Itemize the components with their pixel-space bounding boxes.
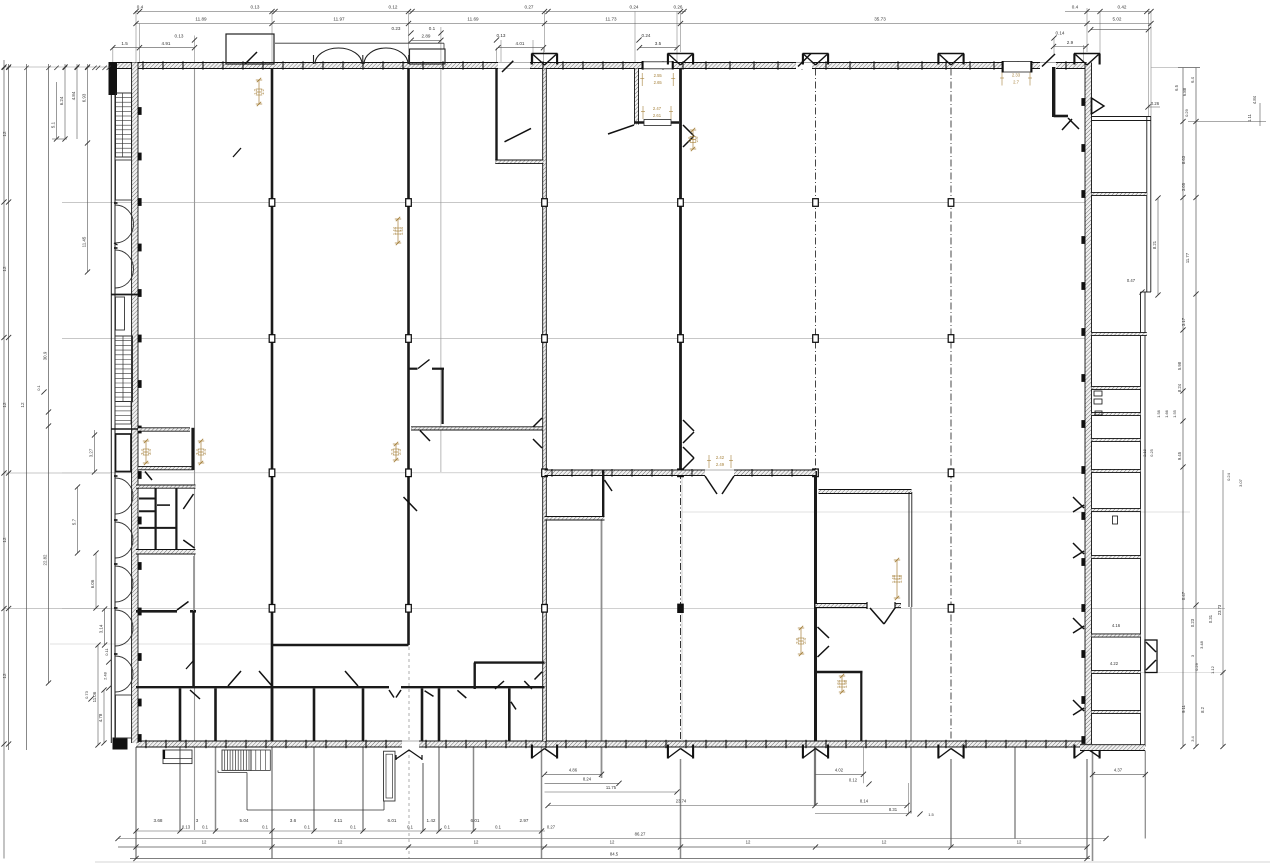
svg-text:0.47: 0.47	[1127, 278, 1136, 283]
svg-text:0.1: 0.1	[350, 824, 356, 829]
svg-text:2.6: 2.6	[687, 136, 692, 142]
svg-text:11.73: 11.73	[605, 17, 617, 22]
svg-text:0.24: 0.24	[1226, 472, 1231, 481]
svg-text:0.1: 0.1	[262, 824, 268, 829]
svg-text:0.4: 0.4	[137, 5, 144, 10]
svg-text:1.58: 1.58	[1156, 410, 1161, 418]
svg-text:4.16: 4.16	[1112, 623, 1121, 628]
svg-text:2.7: 2.7	[1013, 80, 1019, 85]
svg-text:12: 12	[610, 840, 615, 845]
svg-text:0.1: 0.1	[407, 824, 413, 829]
svg-text:1.48: 1.48	[898, 574, 903, 583]
svg-text:6.06: 6.06	[90, 579, 95, 588]
svg-text:8.24: 8.24	[1177, 383, 1182, 392]
svg-text:86.27: 86.27	[635, 831, 646, 836]
svg-text:4.37: 4.37	[1114, 768, 1123, 773]
svg-text:12: 12	[2, 673, 7, 679]
svg-text:3.27: 3.27	[89, 448, 94, 457]
svg-text:5.7: 5.7	[72, 518, 77, 525]
svg-text:11.77: 11.77	[1185, 252, 1190, 263]
svg-text:3.5: 3.5	[655, 41, 662, 46]
svg-text:8.21: 8.21	[1152, 240, 1157, 249]
svg-text:3.4: 3.4	[195, 448, 200, 454]
svg-text:6.5: 6.5	[1174, 84, 1179, 90]
svg-text:0.12: 0.12	[849, 778, 858, 783]
svg-text:2.6: 2.6	[694, 136, 699, 142]
svg-text:0.4: 0.4	[1072, 5, 1079, 10]
svg-text:0.1: 0.1	[429, 26, 436, 31]
svg-text:12: 12	[202, 840, 207, 845]
svg-text:0.24: 0.24	[630, 5, 639, 10]
svg-text:2.65: 2.65	[654, 80, 663, 85]
svg-text:2.49: 2.49	[716, 462, 725, 467]
svg-text:8.14: 8.14	[860, 799, 869, 804]
svg-text:3.48: 3.48	[1199, 640, 1204, 649]
svg-text:12: 12	[2, 537, 7, 543]
svg-text:0.13: 0.13	[182, 824, 191, 829]
svg-text:0.27: 0.27	[525, 5, 534, 10]
svg-text:30.9: 30.9	[43, 351, 48, 360]
svg-text:3.6: 3.6	[290, 818, 297, 823]
svg-text:1.98: 1.98	[843, 679, 848, 688]
svg-text:2.8: 2.8	[795, 637, 800, 643]
svg-text:4.11: 4.11	[334, 818, 343, 823]
svg-text:8.2: 8.2	[1200, 706, 1205, 712]
svg-text:1.66: 1.66	[1164, 410, 1169, 418]
svg-text:12: 12	[2, 131, 7, 137]
svg-text:1.5: 1.5	[928, 812, 934, 817]
svg-text:12: 12	[474, 840, 479, 845]
svg-text:2.4: 2.4	[802, 637, 807, 643]
svg-text:1.48: 1.48	[891, 574, 896, 583]
svg-text:3.4: 3.4	[202, 448, 207, 454]
svg-text:11.75: 11.75	[606, 785, 617, 790]
svg-text:23.73: 23.73	[1217, 604, 1222, 615]
svg-text:0.23: 0.23	[1190, 618, 1195, 627]
svg-text:6.88: 6.88	[1182, 87, 1187, 96]
svg-text:6.24: 6.24	[59, 96, 64, 105]
svg-text:1.44: 1.44	[399, 226, 404, 235]
svg-text:3: 3	[196, 818, 199, 823]
svg-text:3.4: 3.4	[147, 448, 152, 454]
svg-text:0.24: 0.24	[642, 33, 651, 38]
svg-text:0.11: 0.11	[104, 647, 109, 655]
svg-text:6.01: 6.01	[388, 818, 397, 823]
svg-text:6.01: 6.01	[471, 818, 480, 823]
svg-text:4.22: 4.22	[1110, 661, 1119, 666]
svg-text:0.73: 0.73	[84, 690, 89, 699]
svg-text:0.26: 0.26	[1151, 101, 1160, 106]
svg-text:2.42: 2.42	[716, 455, 725, 460]
svg-text:1.11: 1.11	[1247, 113, 1252, 122]
svg-text:3.14: 3.14	[99, 624, 104, 633]
svg-text:12: 12	[20, 402, 25, 408]
svg-text:4.86: 4.86	[569, 767, 578, 772]
svg-text:12: 12	[2, 402, 7, 408]
svg-text:11.69: 11.69	[467, 17, 479, 22]
svg-text:2.33: 2.33	[1012, 73, 1021, 78]
svg-text:8.31: 8.31	[889, 807, 898, 812]
svg-text:9.45: 9.45	[1177, 451, 1182, 460]
svg-text:4.91: 4.91	[162, 41, 171, 46]
svg-text:2.97: 2.97	[520, 818, 529, 823]
svg-text:0.1: 0.1	[202, 824, 208, 829]
svg-text:0.14: 0.14	[1056, 31, 1065, 36]
svg-text:0.29: 0.29	[1184, 108, 1189, 117]
svg-text:0.23: 0.23	[392, 26, 401, 31]
svg-text:12: 12	[2, 266, 7, 272]
svg-text:23.74: 23.74	[676, 799, 687, 804]
svg-text:4.84: 4.84	[71, 91, 76, 100]
svg-text:0.29: 0.29	[1194, 662, 1199, 671]
svg-text:2.3: 2.3	[397, 448, 402, 454]
svg-text:84.5: 84.5	[610, 852, 619, 857]
svg-text:5.04: 5.04	[240, 818, 249, 823]
svg-text:1.5: 1.5	[121, 41, 128, 46]
svg-text:6.4: 6.4	[1190, 76, 1195, 82]
svg-text:5.1: 5.1	[51, 121, 56, 128]
svg-text:2.61: 2.61	[653, 113, 662, 118]
svg-text:11.97: 11.97	[333, 17, 345, 22]
svg-text:2.89: 2.89	[422, 34, 431, 39]
svg-text:4.01: 4.01	[516, 41, 525, 46]
svg-text:1.64: 1.64	[836, 679, 841, 688]
svg-text:1.2: 1.2	[260, 88, 265, 94]
svg-text:0.13: 0.13	[251, 5, 260, 10]
svg-text:0.27: 0.27	[547, 824, 556, 829]
svg-text:0.47: 0.47	[1181, 591, 1186, 600]
svg-text:12: 12	[746, 840, 751, 845]
svg-text:3.17: 3.17	[1181, 317, 1186, 326]
svg-text:3.4: 3.4	[1190, 735, 1195, 741]
svg-text:0.12: 0.12	[389, 5, 398, 10]
svg-text:2.55: 2.55	[654, 73, 663, 78]
svg-text:0.26: 0.26	[674, 5, 683, 10]
svg-text:0.1: 0.1	[495, 824, 501, 829]
svg-text:8.63: 8.63	[1181, 155, 1186, 164]
svg-text:3.4: 3.4	[140, 448, 145, 454]
svg-text:1.44: 1.44	[392, 226, 397, 235]
svg-text:6.93: 6.93	[82, 93, 87, 102]
svg-text:8.24: 8.24	[583, 776, 592, 781]
svg-text:11.45: 11.45	[82, 236, 87, 247]
svg-text:0.13: 0.13	[175, 34, 184, 39]
svg-text:2.3: 2.3	[390, 448, 395, 454]
svg-text:2.18: 2.18	[1142, 449, 1147, 457]
svg-text:35.73: 35.73	[874, 17, 886, 22]
svg-text:12: 12	[338, 840, 343, 845]
svg-text:0.1: 0.1	[304, 824, 310, 829]
svg-text:0.13: 0.13	[497, 33, 506, 38]
svg-text:22.82: 22.82	[43, 554, 48, 566]
svg-text:11.89: 11.89	[195, 17, 207, 22]
svg-text:0.42: 0.42	[1118, 5, 1127, 10]
svg-text:1.42: 1.42	[427, 818, 436, 823]
svg-text:2.47: 2.47	[653, 106, 662, 111]
svg-text:0.25: 0.25	[1149, 449, 1154, 457]
svg-text:5.98: 5.98	[1177, 361, 1182, 370]
svg-text:4.02: 4.02	[835, 767, 844, 772]
svg-text:3.07: 3.07	[1238, 478, 1243, 487]
svg-text:4.84: 4.84	[1252, 95, 1257, 104]
svg-text:0.31: 0.31	[1208, 614, 1213, 623]
svg-text:0.1: 0.1	[444, 824, 450, 829]
svg-text:2.9: 2.9	[1067, 40, 1074, 45]
svg-text:1.12: 1.12	[1210, 665, 1215, 674]
svg-text:1.55: 1.55	[1172, 410, 1177, 418]
svg-text:3.68: 3.68	[154, 818, 163, 823]
svg-text:12: 12	[1017, 840, 1022, 845]
svg-text:0.1: 0.1	[36, 384, 41, 390]
svg-text:12: 12	[882, 840, 887, 845]
svg-text:1.2: 1.2	[253, 88, 258, 94]
svg-text:2.48: 2.48	[103, 671, 108, 680]
svg-text:5.02: 5.02	[1113, 17, 1122, 22]
svg-text:9.11: 9.11	[1181, 704, 1186, 713]
svg-text:4.78: 4.78	[98, 713, 103, 722]
svg-text:3.05: 3.05	[1181, 182, 1186, 191]
